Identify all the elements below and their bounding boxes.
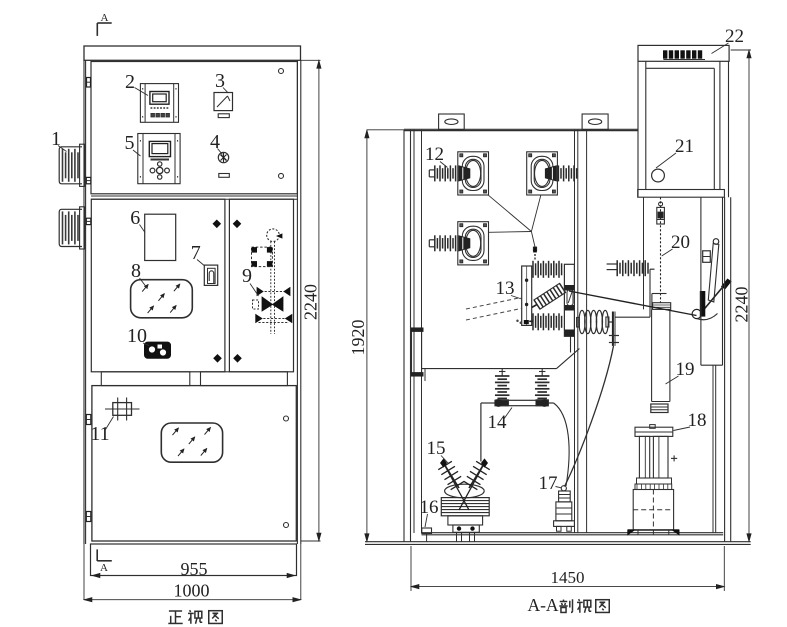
svg-text:2240: 2240: [301, 284, 321, 320]
svg-text:2240: 2240: [732, 287, 752, 323]
svg-text:16: 16: [420, 497, 439, 518]
svg-text:21: 21: [675, 136, 694, 157]
svg-text:1000: 1000: [174, 581, 210, 601]
svg-text:1920: 1920: [348, 320, 368, 356]
svg-text:6: 6: [130, 207, 140, 229]
svg-text:3: 3: [215, 70, 225, 92]
svg-text:19: 19: [676, 359, 695, 380]
svg-text:2: 2: [125, 71, 135, 93]
svg-text:18: 18: [688, 410, 707, 431]
svg-text:17: 17: [539, 473, 558, 494]
svg-text:A-A: A-A: [527, 595, 558, 615]
svg-text:7: 7: [191, 242, 201, 264]
svg-text:955: 955: [181, 559, 208, 579]
svg-text:15: 15: [427, 438, 446, 459]
svg-text:A: A: [101, 12, 109, 24]
svg-text:20: 20: [671, 232, 690, 253]
svg-text:5: 5: [125, 132, 135, 154]
svg-text:11: 11: [90, 423, 109, 445]
svg-text:1450: 1450: [551, 568, 585, 587]
svg-text:A: A: [100, 562, 108, 574]
svg-text:14: 14: [488, 412, 508, 433]
